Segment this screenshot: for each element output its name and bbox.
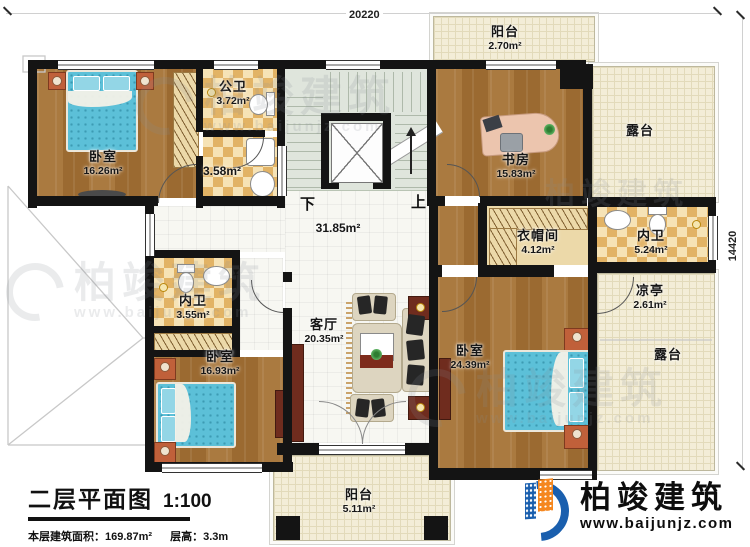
room-label-cloakroom: 衣帽间4.12m² xyxy=(517,229,559,256)
window xyxy=(58,60,154,70)
window xyxy=(214,60,258,70)
stair-up-label: 上 xyxy=(411,191,426,212)
brand-name: 柏竣建筑 xyxy=(580,482,733,513)
elevator-wall xyxy=(321,113,329,189)
sofa-cushion xyxy=(373,295,388,314)
window xyxy=(145,214,155,256)
title-block: 二层平面图 1:100 本层建筑面积：169.87m² 层高：3.3m xyxy=(28,480,228,544)
elevator-wall xyxy=(321,113,391,121)
floor-drain xyxy=(159,283,168,292)
wall-segment xyxy=(588,197,597,480)
nightstand xyxy=(564,328,590,352)
room-label-bedroom-2: 卧室16.93m² xyxy=(200,350,239,377)
room-label-bedroom-1: 卧室16.26m² xyxy=(83,150,122,177)
wall-segment xyxy=(427,64,436,205)
tv-cabinet xyxy=(439,358,451,420)
decor-dot xyxy=(416,403,425,412)
wall-segment xyxy=(196,66,203,132)
room-label-study: 书房15.83m² xyxy=(496,153,535,180)
balcony-pier xyxy=(424,516,448,540)
room-label-pavilion: 凉亭2.61m² xyxy=(633,284,666,311)
dimension-line-right xyxy=(742,16,743,470)
plant-icon xyxy=(544,124,555,135)
wall-segment xyxy=(592,262,716,273)
wall-segment xyxy=(583,64,592,198)
wall-segment xyxy=(28,196,158,206)
floor-drain xyxy=(692,220,701,229)
wall-segment xyxy=(480,196,587,206)
floor-drain xyxy=(207,88,216,97)
elevator-wall xyxy=(321,183,339,189)
brand-logo-icon xyxy=(508,477,570,537)
toilet-icon xyxy=(249,94,268,115)
sofa-cushion xyxy=(355,398,370,417)
bed xyxy=(66,70,138,152)
sink-icon xyxy=(250,171,275,197)
room-label-living: 客厅20.35m² xyxy=(304,318,343,345)
room-label-balcony-top: 阳台2.70m² xyxy=(488,25,521,52)
decor-dot xyxy=(416,303,425,312)
elevator-wall xyxy=(383,113,391,189)
room-label-balcony-bottom: 阳台5.11m² xyxy=(343,488,376,515)
room-label-public-bath: 公卫3.72m² xyxy=(216,80,249,107)
sink-icon xyxy=(203,266,230,286)
elevator-shaft xyxy=(331,123,383,183)
wall-segment xyxy=(283,272,292,282)
wall-segment xyxy=(429,265,442,277)
wall-segment xyxy=(145,250,240,258)
desk-chair xyxy=(500,133,523,152)
nightstand xyxy=(154,442,176,464)
sofa-cushion xyxy=(357,295,372,315)
wall-segment xyxy=(145,326,240,333)
wall-segment xyxy=(196,196,285,206)
wall-segment xyxy=(429,205,438,480)
floor-area-label: 本层建筑面积：169.87m² xyxy=(28,528,152,544)
window xyxy=(277,146,287,196)
toilet-icon xyxy=(178,272,194,293)
wall-segment xyxy=(232,250,240,350)
tv-cabinet xyxy=(291,344,304,442)
floor-plan: 20220 14420 xyxy=(0,0,750,547)
dimension-right-value: 14420 xyxy=(727,215,739,277)
nightstand xyxy=(154,358,176,380)
room-label-terrace-right: 露台 xyxy=(654,348,682,363)
wall-segment xyxy=(277,443,319,455)
sofa-cushion xyxy=(406,314,426,336)
stair-up-arrowhead xyxy=(406,122,416,136)
dimension-top-value: 20220 xyxy=(346,9,383,21)
stair-down-label: 下 xyxy=(300,193,315,214)
room-label-bath-annex: 3.58m² xyxy=(203,165,241,179)
window xyxy=(708,216,718,260)
wall-segment xyxy=(592,197,716,207)
window xyxy=(486,60,556,70)
wall-segment xyxy=(203,130,265,137)
cloakroom-rack-top xyxy=(489,208,588,230)
stair-up-arrow xyxy=(410,132,412,174)
room-label-inner-bath-right: 内卫5.24m² xyxy=(634,229,667,256)
nightstand xyxy=(48,72,66,90)
scale-label: 1:100 xyxy=(163,491,212,513)
nightstand xyxy=(564,425,590,449)
wall-segment xyxy=(478,265,554,277)
page-title: 二层平面图 xyxy=(28,480,153,514)
title-underline xyxy=(28,517,190,521)
wall-segment xyxy=(478,203,487,273)
brand-website: www.baijunjz.com xyxy=(580,515,733,532)
sofa-cushion xyxy=(406,364,425,385)
sofa-cushion xyxy=(406,339,425,361)
wall-segment xyxy=(28,60,37,208)
window xyxy=(326,60,380,70)
room-label-terrace-topright: 露台 xyxy=(626,124,654,139)
cloakroom-rack-side xyxy=(489,228,517,267)
plant-icon xyxy=(371,349,382,360)
room-label-bedroom-3: 卧室24.39m² xyxy=(450,344,489,371)
nightstand xyxy=(136,72,154,90)
floor-height-label: 层高：3.3m xyxy=(170,528,228,544)
sink-icon xyxy=(604,210,631,230)
room-label-inner-bath-left: 内卫3.55m² xyxy=(176,294,209,321)
elevator-wall xyxy=(373,183,391,189)
sliding-door xyxy=(319,445,405,455)
window xyxy=(162,463,262,473)
bed xyxy=(156,382,236,448)
balcony-pier xyxy=(276,516,300,540)
bed xyxy=(503,350,591,432)
brand-logo: 柏竣建筑 www.baijunjz.com xyxy=(508,477,733,537)
hall-area-label: 31.85m² xyxy=(316,222,361,236)
